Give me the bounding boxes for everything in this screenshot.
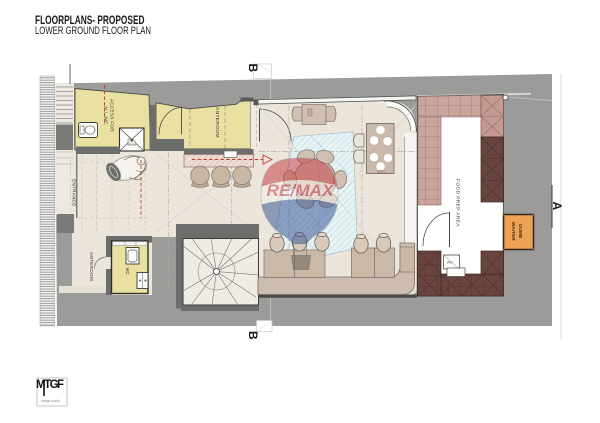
svg-text:WC: WC [125, 268, 130, 275]
svg-text:A: A [550, 202, 564, 211]
svg-text:ANTEROOM: ANTEROOM [89, 252, 94, 281]
svg-text:FOOD PREP AREA: FOOD PREP AREA [455, 179, 461, 227]
svg-text:B: B [246, 331, 260, 340]
svg-text:ENTRANCE: ENTRANCE [72, 179, 77, 207]
svg-text:B: B [246, 64, 260, 73]
svg-text:MTGF: MTGF [36, 379, 64, 391]
svg-text:AC: AC [447, 260, 453, 265]
svg-text:RE/MAX: RE/MAX [267, 181, 336, 200]
svg-text:design studio: design studio [41, 399, 60, 403]
svg-text:ACCESS FOR: ACCESS FOR [110, 99, 115, 132]
svg-text:DUMB: DUMB [517, 224, 523, 239]
svg-text:WAITER: WAITER [510, 222, 516, 241]
svg-text:LOWER GROUND FLOOR PLAN: LOWER GROUND FLOOR PLAN [35, 25, 151, 37]
svg-text:ANTEROOM: ANTEROOM [214, 107, 220, 138]
